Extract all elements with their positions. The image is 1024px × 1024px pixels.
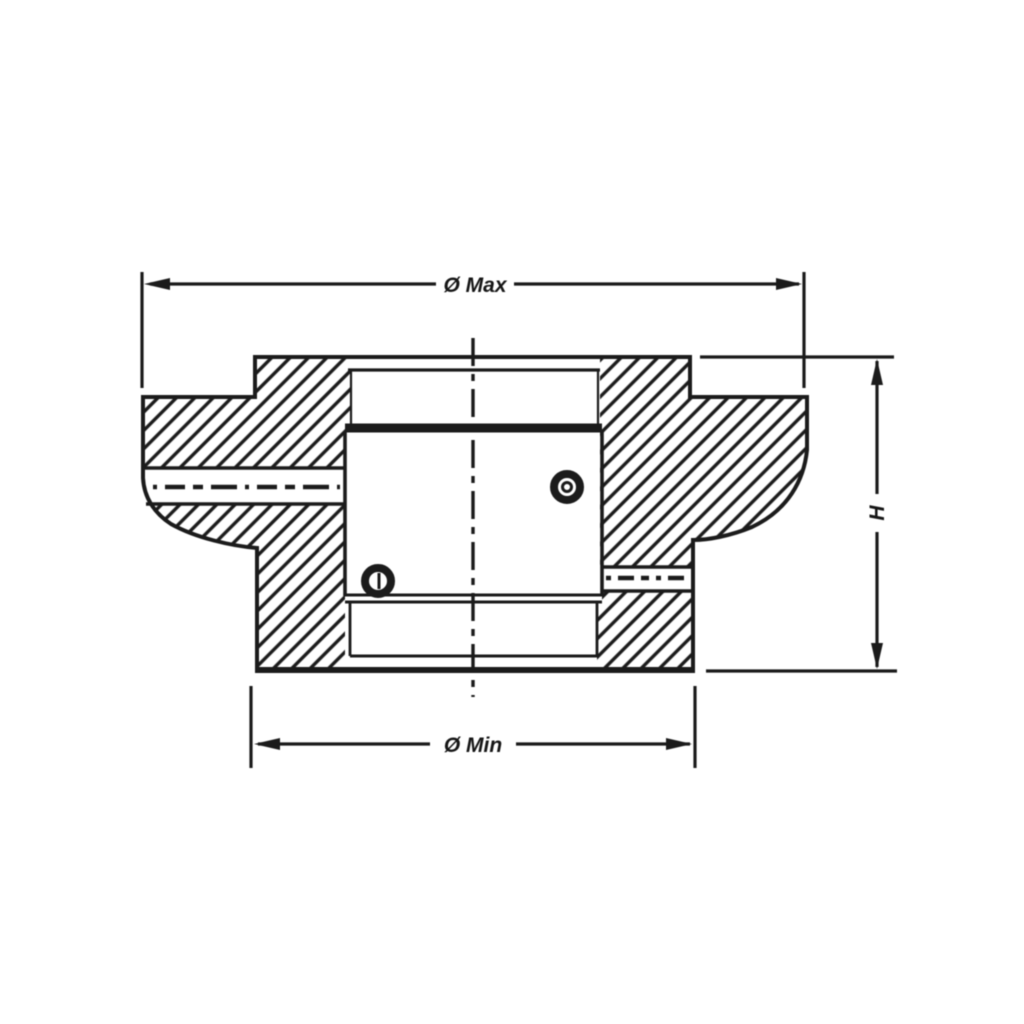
hatch-lower-right	[597, 591, 691, 668]
height-arrow-bottom-icon	[871, 643, 883, 669]
dia-min-arrow-left-icon	[254, 738, 280, 750]
dia-max-arrow-right-icon	[776, 278, 802, 290]
hatch-upper-left	[143, 357, 351, 468]
hatch-upper-right	[600, 357, 807, 567]
dim-label-dia-min: Ø Min	[444, 734, 502, 757]
height-arrow-top-icon	[871, 359, 883, 385]
dia-min-arrow-right-icon	[666, 738, 692, 750]
set-screw-hole-marker-right-icon	[554, 474, 580, 500]
technical-section-drawing: Ø Max Ø Min H	[0, 0, 1024, 1024]
set-screw-hole-marker-right-inner	[563, 483, 572, 492]
section-hatch-areas	[143, 357, 807, 668]
dimension-dia-min: Ø Min	[251, 686, 695, 768]
dia-max-arrow-left-icon	[144, 278, 170, 290]
drawing-canvas: Ø Max Ø Min H	[0, 0, 1024, 1024]
dim-label-height: H	[866, 505, 889, 521]
dim-label-dia-max: Ø Max	[443, 274, 507, 297]
